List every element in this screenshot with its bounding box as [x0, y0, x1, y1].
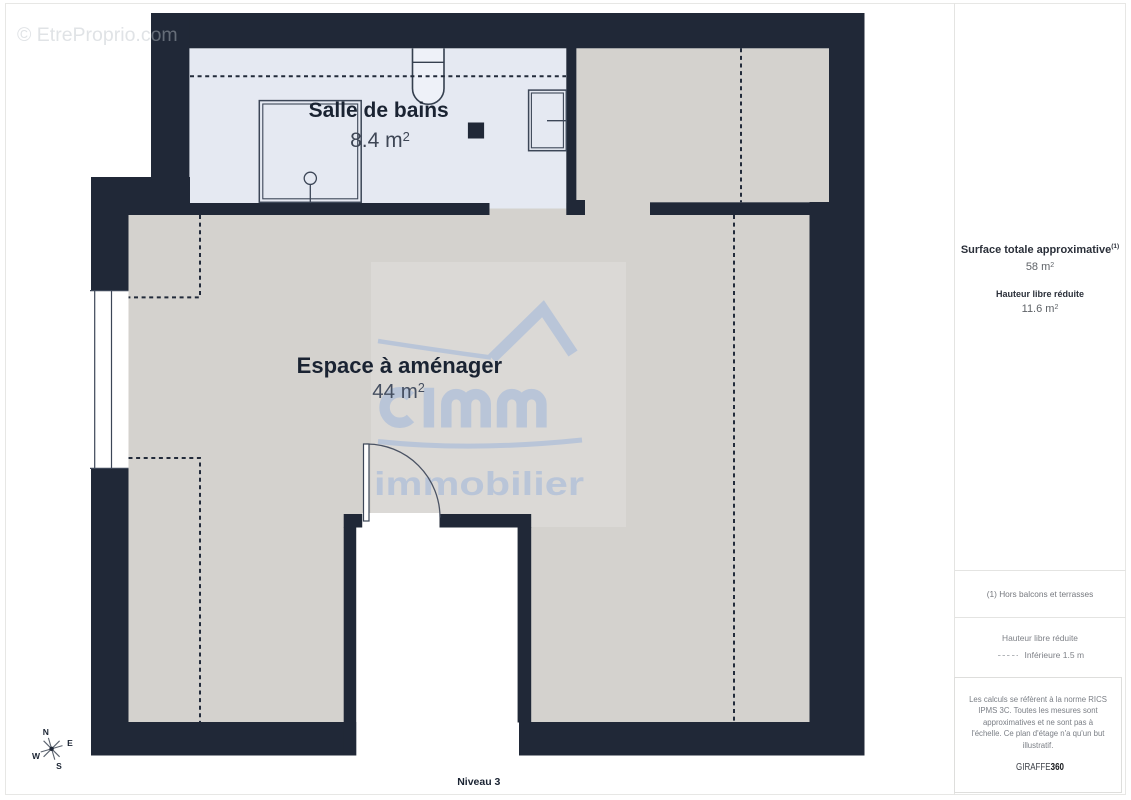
svg-text:immobilier: immobilier: [374, 465, 584, 502]
